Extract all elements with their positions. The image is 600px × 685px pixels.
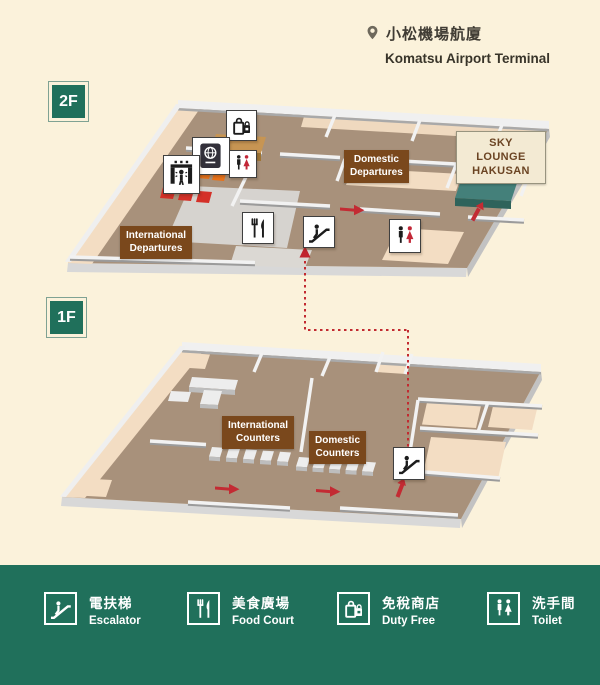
legend-item-food-court: 美食廣場 Food Court bbox=[187, 592, 294, 627]
escalator-icon bbox=[303, 216, 335, 248]
label-domestic-counters: Domestic Counters bbox=[309, 431, 366, 464]
duty-free-icon bbox=[337, 592, 370, 625]
legend-label-zh: 美食廣場 bbox=[232, 592, 294, 612]
security-gate-icon bbox=[163, 155, 200, 194]
toilet-icon bbox=[389, 219, 421, 253]
label-domestic-departures: Domestic Departures bbox=[344, 150, 409, 183]
duty-free-icon bbox=[226, 110, 257, 141]
legend-item-toilet: 洗手間 Toilet bbox=[487, 592, 576, 627]
toilet-icon bbox=[229, 150, 257, 178]
escalator-icon bbox=[393, 447, 425, 480]
legend-label-en: Escalator bbox=[89, 615, 141, 627]
label-international-departures: International Departures bbox=[120, 226, 192, 259]
legend-bar: 電扶梯 Escalator 美食廣場 Food Court bbox=[0, 565, 600, 685]
food-court-icon bbox=[242, 212, 274, 244]
legend-label-en: Duty Free bbox=[382, 615, 440, 627]
toilet-icon bbox=[487, 592, 520, 625]
airport-floor-map-page: 小松機場航廈 Komatsu Airport Terminal 2F 1F bbox=[0, 0, 600, 685]
floor-1f-map bbox=[60, 342, 542, 528]
legend-label-en: Toilet bbox=[532, 615, 576, 627]
food-court-icon bbox=[187, 592, 220, 625]
legend-item-escalator: 電扶梯 Escalator bbox=[44, 592, 141, 627]
legend-label-en: Food Court bbox=[232, 615, 294, 627]
label-international-counters: International Counters bbox=[222, 416, 294, 449]
legend-label-zh: 洗手間 bbox=[532, 592, 576, 612]
legend-label-zh: 電扶梯 bbox=[89, 592, 141, 612]
legend-label-zh: 免稅商店 bbox=[382, 592, 440, 612]
legend-item-duty-free: 免稅商店 Duty Free bbox=[337, 592, 440, 627]
label-sky-lounge: SKY LOUNGE HAKUSAN bbox=[456, 131, 546, 184]
escalator-icon bbox=[44, 592, 77, 625]
